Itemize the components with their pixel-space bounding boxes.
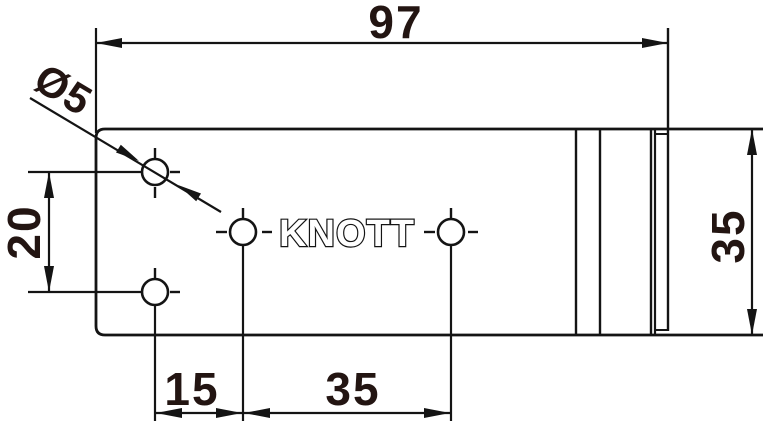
brand-stamp: KNOTT: [279, 213, 415, 255]
dim-right-height: 35: [702, 129, 757, 335]
plate-body: [96, 28, 763, 335]
arrowhead-upper-icon: [116, 145, 139, 161]
dim-hole-diameter: Ø5: [26, 54, 221, 212]
arrowhead-left-icon: [244, 408, 270, 418]
dim-label-right-height: 35: [702, 208, 754, 263]
hole-middle: [230, 219, 256, 245]
arrowhead-lower-icon: [178, 185, 201, 201]
arrowhead-down-icon: [44, 266, 54, 292]
drawing-canvas: 97 Ø5 20 35 15 35 KNOTT: [0, 0, 768, 430]
arrowhead-up-icon: [747, 129, 757, 155]
technical-drawing: 97 Ø5 20 35 15 35 KNOTT: [0, 0, 768, 430]
dim-top-width: 97: [96, 0, 668, 133]
hole-right: [438, 219, 464, 245]
hole-bottom-left: [142, 279, 168, 305]
arrowhead-right-icon: [642, 38, 668, 48]
dim-left-spacing: 20: [0, 172, 141, 292]
arrowhead-up-icon: [44, 172, 54, 198]
dim-label-left-spacing: 20: [0, 204, 50, 259]
arrowhead-left-icon: [96, 38, 122, 48]
arrowhead-down-icon: [747, 309, 757, 335]
dim-label-bottom-right: 35: [325, 363, 380, 415]
dim-label-top-width: 97: [368, 0, 423, 48]
dim-label-bottom-left: 15: [164, 363, 219, 415]
arrowhead-right-icon: [216, 408, 242, 418]
dim-bottom-spacings: 15 35: [155, 246, 451, 421]
arrowhead-right-icon: [424, 408, 450, 418]
dim-label-hole-diameter: Ø5: [26, 54, 100, 124]
